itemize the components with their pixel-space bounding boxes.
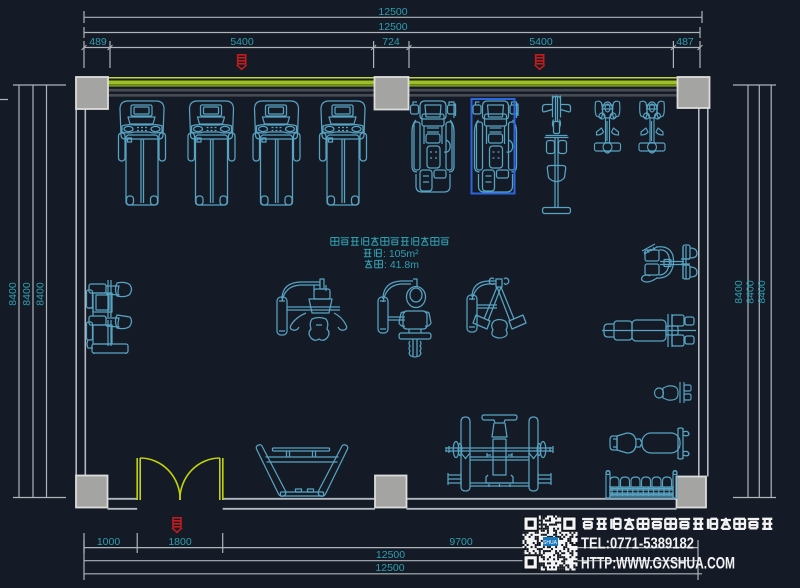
svg-text:724: 724	[382, 36, 400, 48]
svg-text:9700: 9700	[449, 536, 473, 548]
svg-text:12500: 12500	[378, 6, 407, 18]
svg-text:487: 487	[676, 36, 694, 48]
svg-text:489: 489	[89, 36, 107, 48]
svg-text:12500: 12500	[376, 549, 405, 561]
svg-text:TEL:0771-5389182: TEL:0771-5389182	[581, 536, 694, 553]
svg-text:12500: 12500	[375, 562, 404, 574]
svg-text:5400: 5400	[230, 36, 254, 48]
svg-text:12500: 12500	[378, 21, 407, 33]
svg-text:8400: 8400	[7, 282, 19, 306]
svg-text:8400: 8400	[21, 282, 33, 306]
svg-text:5400: 5400	[529, 36, 553, 48]
svg-text:1800: 1800	[168, 536, 192, 548]
svg-text:8400: 8400	[733, 280, 745, 304]
svg-text:1000: 1000	[97, 536, 121, 548]
svg-text:HTTP:WWW.GXSHUA.COM: HTTP:WWW.GXSHUA.COM	[581, 555, 735, 573]
svg-text:SHUA: SHUA	[543, 540, 558, 546]
svg-text:: 41.8m: : 41.8m	[384, 259, 419, 271]
svg-text:8400: 8400	[756, 280, 768, 304]
svg-text:8400: 8400	[745, 280, 757, 304]
svg-text:8400: 8400	[35, 282, 47, 306]
